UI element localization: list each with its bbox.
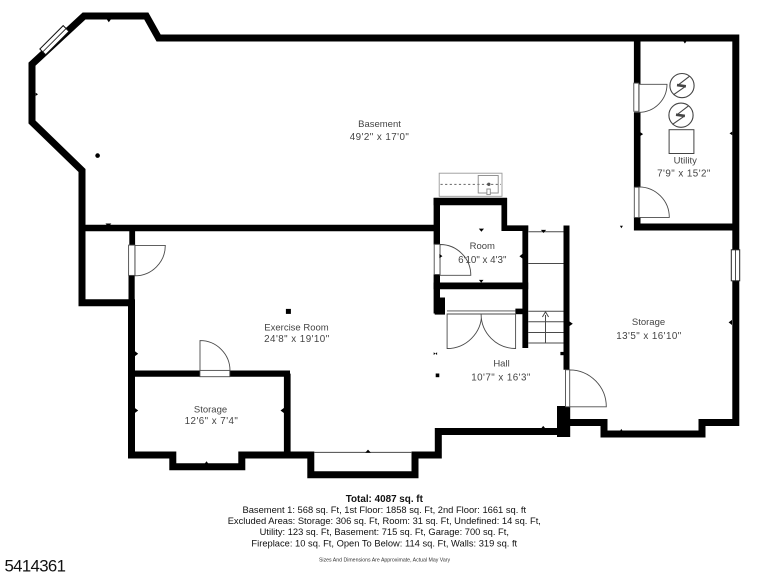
svg-text:Hall: Hall xyxy=(493,358,509,369)
svg-text:Basement 1: 568 sq. Ft, 1st Fl: Basement 1: 568 sq. Ft, 1st Floor: 1858 … xyxy=(243,505,527,515)
svg-text:Basement: Basement xyxy=(358,119,401,130)
svg-text:Storage: Storage xyxy=(632,317,665,328)
svg-text:Total: 4087 sq. ft: Total: 4087 sq. ft xyxy=(346,494,424,505)
svg-text:10'7" x 16'3": 10'7" x 16'3" xyxy=(471,372,531,383)
svg-text:24'8" x 19'10": 24'8" x 19'10" xyxy=(264,334,330,345)
svg-text:Utility: Utility xyxy=(674,155,697,166)
svg-text:Storage: Storage xyxy=(194,404,227,415)
svg-text:Utility: 123 sq. Ft, Basement:: Utility: 123 sq. Ft, Basement: 715 sq. F… xyxy=(260,527,509,537)
svg-text:Excluded Areas: Storage: 306 s: Excluded Areas: Storage: 306 sq. Ft, Roo… xyxy=(228,516,541,526)
svg-text:Exercise Room: Exercise Room xyxy=(264,323,328,334)
svg-text:13'5" x 16'10": 13'5" x 16'10" xyxy=(616,331,682,342)
svg-text:12'6" x 7'4": 12'6" x 7'4" xyxy=(185,416,239,427)
svg-text:49'2" x 17'0": 49'2" x 17'0" xyxy=(350,132,410,143)
svg-text:Room: Room xyxy=(470,241,495,252)
svg-text:6'10" x 4'3": 6'10" x 4'3" xyxy=(458,255,507,266)
svg-text:Sizes And Dimensions Are Appro: Sizes And Dimensions Are Approximate, Ac… xyxy=(319,557,450,563)
svg-text:5414361: 5414361 xyxy=(5,556,66,575)
svg-text:7'9" x 15'2": 7'9" x 15'2" xyxy=(657,168,711,179)
svg-text:Fireplace: 10 sq. Ft, Open To: Fireplace: 10 sq. Ft, Open To Below: 114… xyxy=(251,538,517,548)
